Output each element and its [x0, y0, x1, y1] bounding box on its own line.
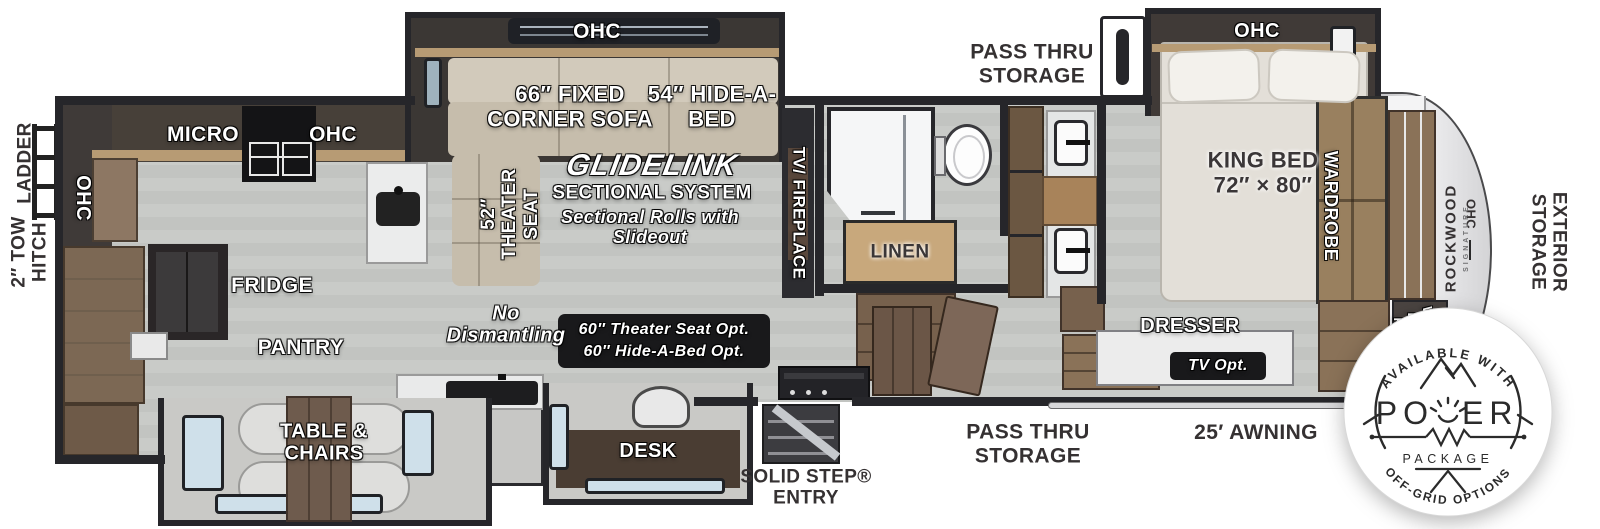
king-bed-label: KING BED 72″ × 80″: [1208, 148, 1319, 197]
badge-power-right: ER: [1462, 395, 1518, 431]
fridge-label: FRIDGE: [231, 274, 313, 298]
awning-bar: [1048, 402, 1363, 409]
alcove-window: [402, 410, 434, 476]
wardrobe-label: WARDROBE: [1321, 151, 1341, 261]
badge-package-text: PACKAGE: [1402, 452, 1493, 466]
brand-label: ROCKWOOD: [1444, 184, 1461, 293]
corner-sofa-label: 66″ FIXED CORNER SOFA: [487, 82, 653, 131]
left-wall: [55, 96, 63, 464]
dresser-label: DRESSER: [1140, 315, 1240, 337]
outside-grill: [778, 366, 870, 400]
kitchen-ohc-left-label: OHC: [72, 175, 94, 221]
living-ohc-label: OHC: [573, 20, 621, 44]
badge-power-left: PO: [1376, 395, 1434, 431]
shower: [827, 107, 935, 227]
power-package-badge: AVAILABLE WITH PO ER PACKAGE OFF-GRID OP…: [1342, 306, 1554, 518]
sectional-system-label: SECTIONAL SYSTEM: [552, 182, 751, 203]
stove: [242, 106, 316, 182]
vanity-mid-cabinet: [1042, 176, 1098, 226]
vanity-faucet-bottom: [1066, 248, 1090, 253]
vanity-cabinets: [1008, 106, 1044, 298]
sofa-options-badge: 60″ Theater Seat Opt. 60″ Hide-A-Bed Opt…: [558, 314, 770, 368]
brand-sub-label: SIGNATURE: [1463, 204, 1471, 272]
pantry-label: PANTRY: [258, 336, 344, 360]
micro-label: MICRO: [167, 123, 239, 147]
entry-partition: [872, 306, 932, 396]
pass-thru-compartment: [1100, 16, 1146, 98]
front-closet: [1388, 110, 1436, 300]
desk-label: DESK: [619, 440, 676, 462]
pantry-lower-cabinet: [63, 404, 139, 456]
tv-opt-text: TV Opt.: [1188, 357, 1248, 375]
glidelink-logo: GLIDELINK: [564, 149, 741, 183]
desk-chair: [632, 386, 690, 428]
top-wall-left: [55, 96, 415, 105]
sectional-note: Sectional Rolls with Slideout: [561, 207, 739, 247]
bath-bottom-wall: [815, 284, 1008, 293]
dinette-window-left: [182, 415, 224, 491]
bedroom-ohc-label: OHC: [1234, 20, 1280, 42]
pass-thru-bottom-label: PASS THRU STORAGE: [966, 420, 1089, 467]
fridge: [148, 244, 228, 340]
bath-left-wall: [815, 104, 824, 296]
tv-fireplace-label: TV/ FIREPLACE: [789, 147, 808, 280]
no-dismantling-label: No Dismantling: [447, 303, 566, 348]
kitchen-peninsula: [366, 162, 428, 264]
toilet: [942, 124, 992, 186]
sofa-side-window: [424, 58, 442, 108]
exterior-storage-label: EXTERIOR STORAGE: [1527, 192, 1570, 292]
linen-label: LINEN: [871, 241, 930, 262]
sofa-shelf: [415, 48, 779, 57]
theater-seat-label: 52″ THEATER SEAT: [478, 168, 542, 259]
tow-hitch-label: 2″ TOW HITCH: [9, 216, 52, 287]
toilet-tank: [934, 136, 946, 176]
kitchen-ohc-cabinet: [92, 158, 138, 242]
desk-window-left: [549, 404, 569, 470]
hide-a-bed-label: 54″ HIDE-A- BED: [648, 82, 777, 131]
entry-label: SOLID STEP® ENTRY: [740, 467, 871, 510]
pantry-cabinet-column: [63, 246, 145, 404]
pillow-right: [1267, 48, 1361, 103]
bottom-wall-mid: [694, 397, 758, 406]
entry-steps: [762, 404, 840, 464]
rv-floorplan: ROCKWOOD SIGNATURE LADDER 2″ TOW HITCH E…: [0, 0, 1600, 529]
bath-inner-wall: [1000, 104, 1008, 236]
awning-label: 25′ AWNING: [1194, 421, 1318, 445]
bottom-wall-left: [55, 455, 165, 464]
ladder-label: LADDER: [14, 122, 35, 204]
pass-thru-top-label: PASS THRU STORAGE: [970, 40, 1093, 87]
bedroom-left-wall: [1097, 104, 1106, 304]
table-chairs-label: TABLE & CHAIRS: [280, 421, 368, 466]
pillow-left: [1167, 48, 1261, 103]
kitchen-tray: [130, 332, 168, 360]
vanity-faucet-top: [1066, 140, 1090, 145]
tv-opt-badge: TV Opt.: [1170, 352, 1266, 380]
desk-window-bottom: [585, 478, 725, 494]
sofa-options-text: 60″ Theater Seat Opt. 60″ Hide-A-Bed Opt…: [579, 319, 750, 362]
kitchen-ohc-top-label: OHC: [309, 123, 357, 147]
